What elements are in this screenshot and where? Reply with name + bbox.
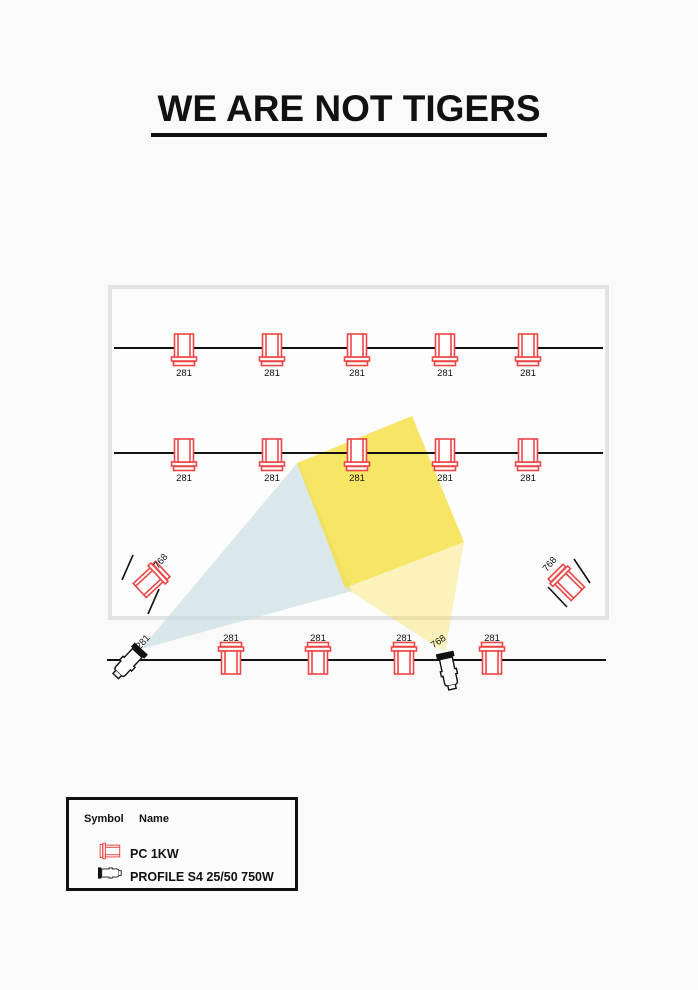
fixture-label: 281 bbox=[349, 473, 365, 484]
pc-icon bbox=[260, 334, 285, 366]
legend-row-pc: PC 1KW bbox=[130, 847, 179, 861]
fixture-label: 281 bbox=[437, 368, 453, 379]
legend-symbol-header: Symbol bbox=[84, 813, 124, 825]
fixture-label: 281 bbox=[349, 368, 365, 379]
profile-icon bbox=[436, 651, 461, 691]
pc-icon bbox=[516, 334, 541, 366]
pc-icon bbox=[392, 643, 417, 675]
fixture-pc bbox=[433, 439, 458, 471]
pc-icon bbox=[345, 439, 370, 471]
fixture-label: 281 bbox=[396, 633, 412, 644]
fixture-label: 281 bbox=[310, 633, 326, 644]
fixture-pc bbox=[306, 643, 331, 675]
fixture-label: 281 bbox=[520, 473, 536, 484]
fixture-pc bbox=[260, 334, 285, 366]
fixture-profile bbox=[436, 651, 461, 691]
fixture-label: 281 bbox=[176, 368, 192, 379]
pc-icon bbox=[172, 334, 197, 366]
fixture-pc bbox=[172, 439, 197, 471]
fixture-pc bbox=[219, 643, 244, 675]
fixture-pc bbox=[345, 334, 370, 366]
pc-icon bbox=[172, 439, 197, 471]
fixture-label: 281 bbox=[223, 633, 239, 644]
fixture-label: 281 bbox=[264, 473, 280, 484]
pc-icon bbox=[306, 643, 331, 675]
fixture-pc bbox=[433, 334, 458, 366]
fixture-label: 281 bbox=[264, 368, 280, 379]
fixture-label: 281 bbox=[176, 473, 192, 484]
pc-icon bbox=[260, 439, 285, 471]
fixture-label: 281 bbox=[520, 368, 536, 379]
fixture-pc bbox=[516, 334, 541, 366]
fixture-pc bbox=[392, 643, 417, 675]
pc-icon bbox=[345, 334, 370, 366]
legend: Symbol Name PC 1KW PROFILE S4 25/50 750W bbox=[66, 797, 298, 891]
pc-icon bbox=[433, 334, 458, 366]
pc-icon bbox=[219, 643, 244, 675]
fixture-label: 281 bbox=[484, 633, 500, 644]
legend-row-profile: PROFILE S4 25/50 750W bbox=[130, 870, 274, 884]
profile-symbol bbox=[91, 860, 131, 891]
fixture-pc bbox=[260, 439, 285, 471]
fixture-pc bbox=[480, 643, 505, 675]
legend-name-header: Name bbox=[139, 813, 169, 825]
fixture-pc bbox=[172, 334, 197, 366]
pc-icon bbox=[480, 643, 505, 675]
pc-icon bbox=[516, 439, 541, 471]
pc-icon bbox=[433, 439, 458, 471]
fixture-pc bbox=[345, 439, 370, 471]
fixture-label: 281 bbox=[437, 473, 453, 484]
fixture-pc bbox=[516, 439, 541, 471]
